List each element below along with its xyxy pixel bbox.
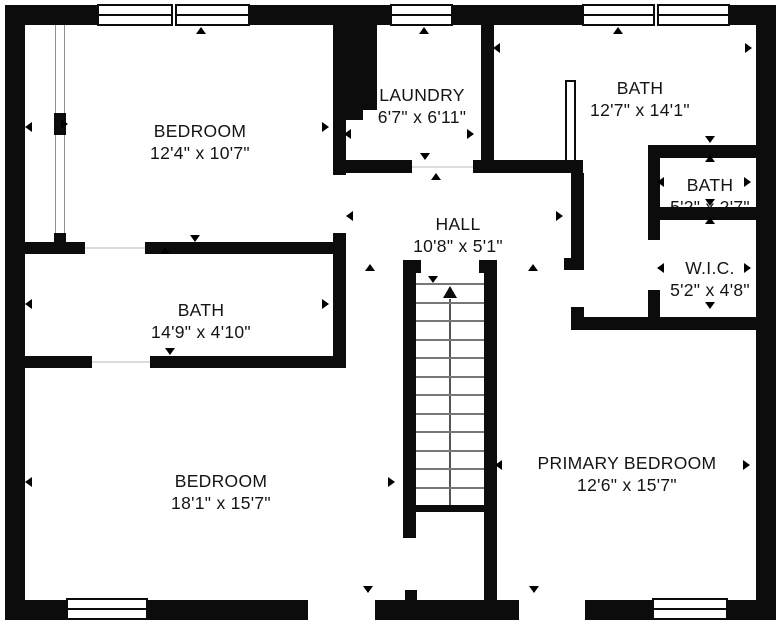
room-dims: 10'8" x 5'1"	[413, 235, 503, 257]
dimension-arrow-up-icon	[705, 217, 715, 224]
room-name: PRIMARY BEDROOM	[538, 452, 717, 474]
dimension-arrow-right-icon	[322, 122, 329, 132]
window	[582, 4, 730, 26]
exterior-wall-bottom-b	[375, 600, 519, 620]
room-dims: 12'6" x 15'7"	[538, 474, 717, 496]
dimension-arrow-up-icon	[528, 264, 538, 271]
room-dims: 12'7" x 14'1"	[590, 99, 690, 121]
stair-tread	[416, 468, 484, 470]
dimension-arrow-left-icon	[495, 460, 502, 470]
dimension-arrow-down-icon	[420, 153, 430, 160]
wall-laundry-mass-step	[345, 110, 363, 120]
wall-bath-left-top-b	[145, 242, 346, 254]
wall-stair-right	[484, 260, 497, 600]
room-label-bath-left: BATH 14'9" x 4'10"	[151, 299, 251, 343]
dimension-arrow-right-icon	[556, 211, 563, 221]
dimension-arrow-down-icon	[428, 276, 438, 283]
dimension-arrow-right-icon	[743, 460, 750, 470]
dimension-arrow-right-icon	[745, 43, 752, 53]
dimension-arrow-up-icon	[365, 264, 375, 271]
stair-tread	[416, 320, 484, 322]
room-name: BEDROOM	[171, 470, 271, 492]
dimension-arrow-right-icon	[744, 177, 751, 187]
door-leaf	[565, 80, 576, 162]
stair-tread	[416, 431, 484, 433]
stair-tread	[416, 376, 484, 378]
dimension-arrow-right-icon	[388, 477, 395, 487]
room-name: BEDROOM	[150, 120, 250, 142]
dimension-arrow-left-icon	[25, 477, 32, 487]
stair-tread	[416, 357, 484, 359]
exterior-wall-left	[5, 5, 25, 620]
wall-wic-south	[571, 317, 766, 330]
stair-tread	[416, 302, 484, 304]
window	[652, 598, 728, 620]
dimension-arrow-up-icon	[196, 27, 206, 34]
dimension-arrow-up-icon	[705, 155, 715, 162]
wall-stair-right-jamb	[479, 260, 497, 273]
room-dims: 18'1" x 15'7"	[171, 492, 271, 514]
room-label-laundry: LAUNDRY 6'7" x 6'11"	[378, 84, 467, 128]
wall-hall-north-a	[333, 160, 412, 173]
room-name: BATH	[670, 174, 750, 196]
dimension-arrow-left-icon	[344, 129, 351, 139]
dimension-arrow-left-icon	[25, 299, 32, 309]
window	[66, 598, 148, 620]
dimension-arrow-left-icon	[493, 43, 500, 53]
room-label-bedroom-2: BEDROOM 18'1" x 15'7"	[171, 470, 271, 514]
dimension-arrow-right-icon	[744, 263, 751, 273]
room-name: LAUNDRY	[378, 84, 467, 106]
stair-tread	[416, 283, 484, 285]
room-name: W.I.C.	[670, 257, 750, 279]
stair-landing-edge	[403, 505, 497, 512]
dimension-arrow-down-icon	[363, 586, 373, 593]
room-label-primary-bedroom: PRIMARY BEDROOM 12'6" x 15'7"	[538, 452, 717, 496]
room-dims: 14'9" x 4'10"	[151, 321, 251, 343]
room-dims: 12'4" x 10'7"	[150, 142, 250, 164]
wall-stair-left	[403, 260, 416, 538]
door-threshold	[92, 361, 150, 363]
dimension-arrow-down-icon	[190, 235, 200, 242]
wall-wic-west-lower	[648, 290, 660, 330]
wall-wic-west-upper	[648, 207, 660, 240]
stair-tread	[416, 487, 484, 489]
wall-laundry-mass	[333, 5, 377, 110]
room-label-bath-main: BATH 12'7" x 14'1"	[590, 77, 690, 121]
wall-hall-east-upper	[571, 173, 584, 268]
dimension-arrow-left-icon	[346, 211, 353, 221]
room-name: BATH	[151, 299, 251, 321]
closet-jamb-b	[54, 233, 66, 247]
dimension-arrow-down-icon	[165, 348, 175, 355]
dimension-arrow-left-icon	[657, 263, 664, 273]
dimension-arrow-left-icon	[657, 177, 664, 187]
wall-stair-left-jamb	[403, 260, 421, 273]
wall-bath-left-bottom-a	[25, 356, 92, 368]
dimension-arrow-down-icon	[705, 199, 715, 206]
window	[97, 4, 250, 26]
exterior-wall-right	[756, 5, 776, 620]
room-label-hall: HALL 10'8" x 5'1"	[413, 213, 503, 257]
stair-tread	[416, 413, 484, 415]
wall-hall-east-jamb	[564, 258, 584, 270]
door-threshold	[85, 247, 145, 249]
dimension-arrow-up-icon	[160, 247, 170, 254]
stair-tread	[416, 394, 484, 396]
floor-plan: BEDROOM 12'4" x 10'7" LAUNDRY 6'7" x 6'1…	[0, 0, 781, 622]
dimension-arrow-right-icon	[467, 129, 474, 139]
wall-bath-left-bottom-b	[150, 356, 346, 368]
window	[390, 4, 453, 26]
stair-up-arrow-icon	[443, 286, 457, 298]
wall-stair-bottom-stub	[405, 590, 417, 602]
dimension-arrow-down-icon	[705, 136, 715, 143]
room-label-bedroom-1: BEDROOM 12'4" x 10'7"	[150, 120, 250, 164]
exterior-wall-bottom-a	[5, 600, 308, 620]
room-name: BATH	[590, 77, 690, 99]
dimension-arrow-up-icon	[431, 173, 441, 180]
stair-tread	[416, 339, 484, 341]
stair-direction-stem	[449, 299, 451, 505]
dimension-arrow-right-icon	[61, 119, 68, 129]
closet-partition	[55, 25, 65, 247]
room-name: HALL	[413, 213, 503, 235]
door-threshold	[412, 166, 473, 168]
dimension-arrow-down-icon	[705, 302, 715, 309]
stair-tread	[416, 450, 484, 452]
dimension-arrow-up-icon	[419, 27, 429, 34]
dimension-arrow-down-icon	[529, 586, 539, 593]
dimension-arrow-up-icon	[613, 27, 623, 34]
dimension-arrow-left-icon	[25, 122, 32, 132]
room-dims: 6'7" x 6'11"	[378, 106, 467, 128]
room-label-wic: W.I.C. 5'2" x 4'8"	[670, 257, 750, 301]
dimension-arrow-right-icon	[322, 299, 329, 309]
room-dims: 5'2" x 4'8"	[670, 279, 750, 301]
